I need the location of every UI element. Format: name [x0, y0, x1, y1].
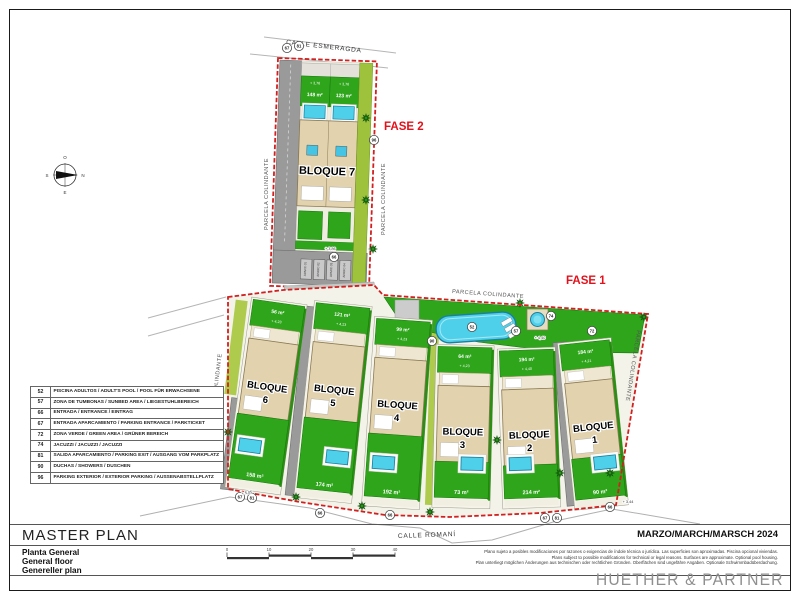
fase2-garden-area-2: 123 m² — [336, 93, 352, 100]
level-label: + 4,23 — [459, 364, 469, 368]
marker-number: 66 — [608, 505, 613, 510]
marker-number: 96 — [372, 138, 377, 143]
svg-text:S: S — [45, 173, 48, 178]
stall-label: APARC 02 — [316, 262, 321, 277]
legend-code: 81 — [31, 451, 51, 462]
compass-icon: O N E S — [45, 155, 84, 195]
titleblock-divider-1 — [9, 524, 791, 525]
rear-area-label: 192 m² — [383, 488, 401, 496]
marker-number: 72 — [590, 329, 595, 334]
private-pool — [461, 457, 483, 471]
legend-code: 90 — [31, 462, 51, 473]
disclaimer-text: Plano sujeto a posibles modificaciones p… — [448, 549, 778, 566]
private-pool — [238, 438, 262, 454]
drawing-title: MASTER PLAN — [22, 527, 139, 544]
marker-number: 74 — [549, 314, 554, 319]
legend-desc: ENTRADA / ENTRANCE / EINTRAG — [51, 408, 224, 419]
jacuzzi — [527, 309, 548, 330]
scale-segment — [311, 557, 353, 559]
private-pool — [509, 457, 531, 471]
parcel-bloque-2: 194 m²+ 4,40BLOQUE2214 m² — [497, 347, 561, 509]
legend-row: 57ZONA DE TUMBONAS / SUNBED AREA / LIEGE… — [31, 397, 224, 408]
marker-number: 52 — [470, 325, 475, 330]
legend-row: 72ZONA VERDE / GREEN AREA / GRÜNER BEREI… — [31, 430, 224, 441]
private-pool — [326, 450, 349, 465]
scale-tick-label: 30 — [351, 547, 356, 552]
svg-text:N: N — [81, 173, 84, 178]
drawing-subtitles: Planta General General floor Genereller … — [22, 549, 82, 575]
legend-desc: JACUZZI / JACUZZI / JACUZZI — [51, 440, 224, 451]
private-pool — [372, 455, 395, 470]
front-area-label: 64 m² — [458, 354, 472, 360]
rear-area-label: 73 m² — [454, 489, 469, 496]
marker-number: 90 — [430, 339, 435, 344]
legend-row: 66ENTRADA / ENTRANCE / EINTRAG — [31, 408, 224, 419]
legend-desc: DUCHAS / SHOWERS / DUSCHEN — [51, 462, 224, 473]
front-area-label: 194 m² — [519, 357, 535, 364]
legend-code: 52 — [31, 387, 51, 398]
legend-desc: PARKING EXTERIOR / EXTERIOR PARKING / AU… — [51, 473, 224, 484]
parcela-colindante-fase2-left: PARCELA COLINDANTE — [264, 158, 270, 230]
scale-tick-label: 0 — [226, 547, 229, 552]
legend-code: 67 — [31, 419, 51, 430]
site-plan-drawing: CALLE ESMERAGDA + 3,76 + 3,76 148 m² 123… — [0, 0, 800, 600]
legend-desc: ENTRADA APARCAMIENTO / PARKING ENTRANCE … — [51, 419, 224, 430]
fase2-garden-area-1: 148 m² — [307, 92, 323, 99]
fase2-garden-level-2: + 3,76 — [339, 82, 349, 86]
scale-bar: 010203040 — [226, 547, 398, 559]
fase2-pool-left — [304, 105, 325, 119]
level-label: + 4,23 — [397, 337, 407, 342]
legend-row: 81SALIDA APARCAMIENTO / PARKING EXIT / A… — [31, 451, 224, 462]
parcel-bloque-3: 64 m²+ 4,23BLOQUE373 m² — [432, 344, 494, 508]
legend-row: 67ENTRADA APARCAMIENTO / PARKING ENTRANC… — [31, 419, 224, 430]
bloque-number: 3 — [460, 440, 466, 451]
drawing-date: MARZO/MARCH/MARSCH 2024 — [637, 529, 778, 540]
marker-number: 67 — [285, 46, 290, 51]
scale-tick-label: 10 — [267, 547, 272, 552]
marker-number: 67 — [543, 516, 548, 521]
marker-number: 66 — [318, 511, 323, 516]
subtitle-de: Genereller plan — [22, 567, 82, 576]
marker-number: 57 — [514, 329, 519, 334]
legend-code: 96 — [31, 473, 51, 484]
fase2-pool-right — [333, 106, 354, 120]
legend-code: 57 — [31, 397, 51, 408]
bloque-7-label: BLOQUE 7 — [299, 165, 356, 179]
fase1-label: FASE 1 — [566, 275, 606, 287]
scale-segment — [227, 557, 269, 559]
marker-number: 81 — [297, 44, 302, 49]
private-pool — [593, 455, 616, 470]
level-label: + 4,40 — [522, 367, 532, 371]
fase2-parking-level: + 3,86 — [325, 247, 336, 251]
legend-row: 52PISCINA ADULTOS / ADULT'S POOL / POOL … — [31, 387, 224, 398]
bloque-name: BLOQUE — [442, 426, 483, 438]
marker-number: 66 — [332, 255, 337, 260]
parcela-colindante-fase2-right: PARCELA COLINDANTE — [381, 163, 387, 235]
legend-row: 96PARKING EXTERIOR / EXTERIOR PARKING / … — [31, 473, 224, 484]
svg-text:O: O — [63, 155, 67, 160]
scale-segment — [269, 555, 311, 557]
legend-desc: ZONA DE TUMBONAS / SUNBED AREA / LIEGEST… — [51, 397, 224, 408]
front-area-label: 99 m² — [396, 327, 410, 334]
titleblock-divider-2 — [9, 545, 791, 546]
level-label: + 3,44 — [623, 500, 634, 504]
svg-text:E: E — [63, 190, 66, 195]
parcela-colindante-fase1-top: PARCELA COLINDANTE — [452, 289, 524, 300]
scale-segment — [353, 555, 395, 557]
marker-number: 81 — [250, 496, 255, 501]
stall-label: APARC 03 — [329, 262, 334, 277]
legend-row: 90DUCHAS / SHOWERS / DUSCHEN — [31, 462, 224, 473]
firm-logo: HUETHER & PARTNER — [596, 571, 784, 590]
legend-desc: SALIDA APARCAMIENTO / PARKING EXIT / AUS… — [51, 451, 224, 462]
legend-desc: ZONA VERDE / GREEN AREA / GRÜNER BEREICH — [51, 430, 224, 441]
stall-label: APARC 01 — [303, 262, 308, 277]
legend-row: 74JACUZZI / JACUZZI / JACUZZI — [31, 440, 224, 451]
marker-number: 66 — [388, 513, 393, 518]
legend-table: 52PISCINA ADULTOS / ADULT'S POOL / POOL … — [30, 386, 224, 484]
legend-desc: PISCINA ADULTOS / ADULT'S POOL / POOL FÜ… — [51, 387, 224, 398]
scale-tick-label: 20 — [309, 547, 314, 552]
fase2-plot: + 3,76 + 3,76 148 m² 123 m² BLOQUE 7 + 3… — [270, 58, 377, 289]
level-label: + 4,40 — [535, 336, 546, 340]
rear-area-label: 214 m² — [522, 489, 540, 497]
street-bottom-label: CALLE ROMANÍ — [398, 529, 456, 540]
marker-number: 81 — [555, 516, 560, 521]
bloque-number: 2 — [527, 443, 533, 454]
bloque-name: BLOQUE — [509, 429, 550, 441]
legend-code: 72 — [31, 430, 51, 441]
fase2-label: FASE 2 — [384, 121, 424, 133]
plan-sheet: CALLE ESMERAGDA + 3,76 + 3,76 148 m² 123… — [0, 0, 800, 600]
stall-label: APARC 04 — [342, 263, 347, 278]
fase2-garden-level-1: + 3,76 — [310, 81, 320, 85]
legend-code: 74 — [31, 440, 51, 451]
legend-code: 66 — [31, 408, 51, 419]
scale-tick-label: 40 — [393, 547, 398, 552]
